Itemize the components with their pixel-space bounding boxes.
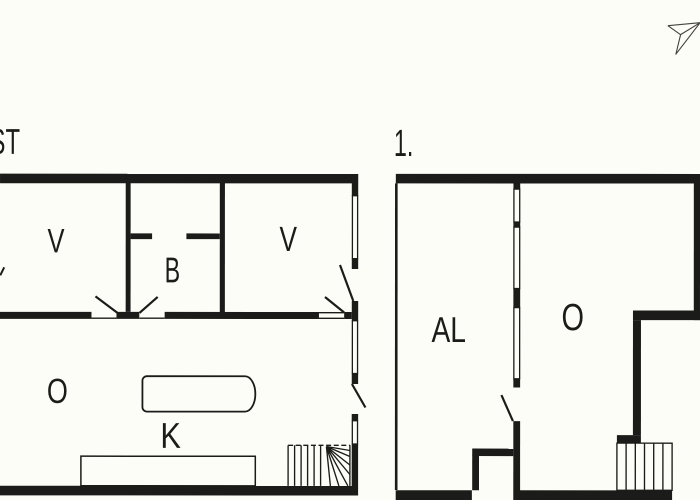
svg-text:K: K — [160, 415, 181, 456]
svg-text:1.: 1. — [394, 123, 414, 165]
svg-text:AL: AL — [431, 309, 466, 350]
svg-text:ST: ST — [0, 121, 20, 162]
svg-text:O: O — [561, 297, 584, 339]
svg-text:V: V — [279, 220, 297, 259]
svg-text:V: V — [47, 222, 64, 260]
svg-text:O: O — [47, 372, 68, 411]
svg-text:B: B — [165, 249, 181, 290]
